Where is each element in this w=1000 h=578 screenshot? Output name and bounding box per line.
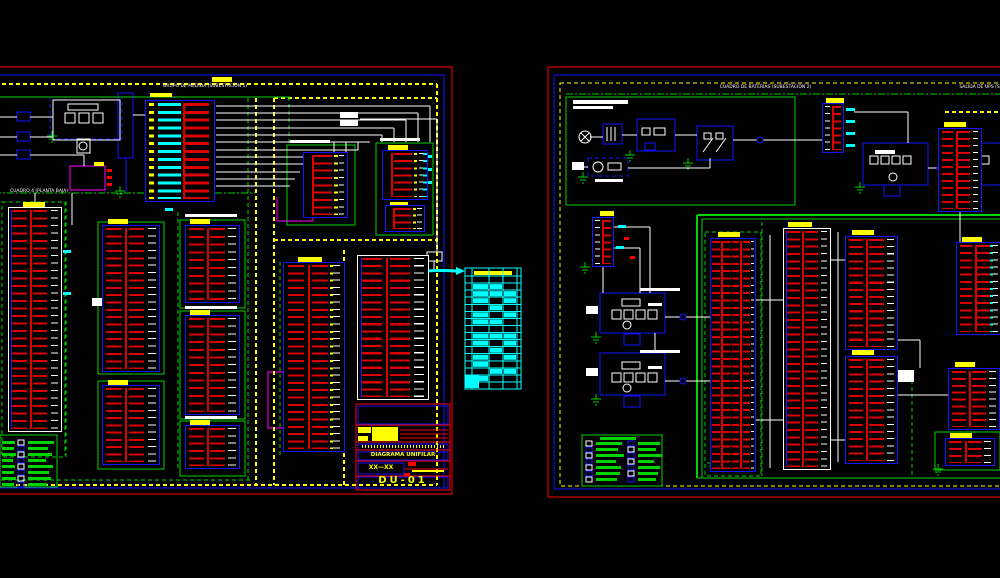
micro-label (852, 230, 874, 235)
strip-bars (228, 228, 235, 300)
strip-bars (395, 208, 411, 229)
cable-table-cell (490, 369, 502, 374)
strip-bars (989, 371, 996, 427)
micro-label (640, 288, 680, 291)
terminal-strip (382, 150, 428, 200)
micro-label (94, 162, 104, 166)
strip-bars (958, 131, 970, 209)
legend-symbol (586, 453, 592, 458)
micro-label (955, 362, 975, 367)
component-box (622, 362, 640, 369)
micro-label (618, 225, 626, 228)
micro-label (600, 211, 614, 216)
micro-label (290, 140, 330, 143)
component-box (648, 310, 657, 319)
micro-label (92, 298, 102, 306)
legend-symbol (18, 440, 24, 445)
micro-label (640, 350, 680, 353)
legend-text (28, 453, 52, 456)
terminal-strip (783, 228, 831, 470)
component-box (70, 166, 105, 190)
component-box (645, 143, 655, 150)
micro-label (573, 106, 613, 109)
legend-text (596, 466, 621, 469)
strip-bars (414, 258, 424, 397)
micro-label (107, 169, 112, 172)
legend-text (2, 465, 15, 468)
component-box (704, 133, 711, 139)
strip-rail (965, 441, 967, 463)
meter-symbol (623, 321, 631, 329)
strip-bars (825, 106, 830, 150)
strip-bars (210, 228, 225, 300)
component-box (65, 113, 75, 123)
ground-symbol (115, 186, 125, 197)
strip-bars (821, 231, 827, 467)
strip-bars (362, 258, 382, 397)
legend-text (28, 483, 47, 486)
strip-bars (394, 153, 412, 197)
strip-bars (603, 220, 611, 264)
component-box (624, 396, 640, 407)
zone-border (560, 83, 1000, 486)
terminal-strip (357, 255, 429, 400)
legend-text (28, 471, 49, 474)
meter-symbol (623, 384, 631, 392)
micro-label (380, 138, 420, 141)
legend-text (596, 448, 618, 451)
legend-text (638, 442, 660, 445)
component-box (79, 113, 89, 123)
strip-bars (960, 245, 972, 332)
meter-symbol (889, 173, 897, 181)
component-box (358, 406, 448, 424)
strip-rail (30, 210, 32, 429)
strip-bars (949, 441, 962, 463)
legend-symbol (628, 471, 634, 476)
legend-symbol (18, 464, 24, 469)
micro-label (108, 219, 128, 224)
micro-label (63, 250, 71, 253)
cable-table-cell (504, 312, 516, 317)
terminal-strip (185, 425, 240, 469)
legend-symbol (18, 452, 24, 457)
component-box (17, 132, 30, 141)
strip-bars (332, 265, 340, 449)
legend-symbol (628, 477, 634, 482)
micro-label (340, 120, 358, 126)
legend-text (638, 472, 658, 475)
cable-table-cell (473, 334, 488, 339)
legend-text (2, 483, 14, 486)
micro-label (63, 292, 71, 295)
strip-rail (969, 371, 971, 427)
micro-label (846, 132, 855, 135)
legend-symbol (628, 453, 634, 458)
strip-bars (952, 371, 966, 427)
component-box (697, 126, 733, 160)
legend-text (28, 477, 51, 480)
strip-bars (148, 228, 156, 369)
transformer-coils (607, 127, 615, 141)
terminal-strip (185, 315, 240, 415)
strip-bars (413, 208, 416, 229)
micro-label (852, 350, 874, 355)
terminal-strip (102, 385, 160, 465)
strip-bars (51, 210, 58, 429)
legend-text (28, 465, 53, 468)
legend-symbol (586, 447, 592, 452)
junction-node (680, 314, 686, 320)
micro-label (616, 246, 624, 249)
component-box (612, 373, 621, 382)
micro-label (898, 370, 914, 382)
micro-label (408, 462, 416, 466)
strip-bars (314, 155, 332, 215)
ground-symbol (591, 332, 601, 343)
ground-symbol (591, 394, 601, 405)
strip-bars (887, 359, 894, 461)
component-box (17, 112, 30, 121)
strip-rail (125, 388, 127, 462)
cable-table-cell (465, 375, 479, 388)
terminal-strip (185, 225, 240, 303)
strip-bars (106, 228, 122, 369)
sheet2-header: CUADRO DE BATERIAS (SUBESTACION 2) (688, 85, 843, 90)
strip-bars (992, 245, 998, 332)
component-box (884, 185, 900, 196)
strip-bars (595, 220, 600, 264)
micro-label (944, 122, 966, 127)
strip-bars (805, 231, 818, 467)
cable-table-cell (473, 291, 488, 296)
strip-bars (210, 428, 225, 466)
legend-text (638, 454, 662, 457)
cable-table-cell (490, 305, 502, 310)
component-box (608, 163, 621, 170)
strip-rail (207, 318, 209, 412)
legend-symbol (628, 465, 634, 470)
legend-text (2, 441, 15, 444)
strip-bars (787, 231, 800, 467)
strip-bars (33, 210, 48, 429)
micro-label (788, 222, 812, 227)
legend-text (596, 442, 622, 445)
component-box (892, 156, 900, 164)
meter-symbol (79, 142, 87, 150)
terminal-strip (8, 207, 62, 432)
component-box (93, 113, 103, 123)
terminal-strip (710, 238, 756, 472)
component-box (654, 128, 665, 135)
strip-bars (743, 241, 750, 469)
strip-bars (984, 441, 991, 463)
strip-bars (228, 318, 235, 412)
strip-bars (390, 258, 410, 397)
strip-bars (334, 155, 337, 215)
cable-table-cell (504, 341, 516, 346)
cable-table-cell (473, 362, 488, 367)
micro-label (586, 368, 598, 376)
micro-label (185, 306, 237, 309)
strip-bars (417, 208, 422, 229)
micro-label (412, 470, 444, 472)
micro-label (107, 183, 112, 186)
strip-bars (712, 241, 720, 469)
micro-label (107, 176, 112, 179)
legend-text (2, 459, 13, 462)
component-box (881, 156, 889, 164)
legend-symbol (18, 446, 24, 451)
legend-text (596, 454, 624, 457)
micro-label (474, 271, 512, 275)
cable-table-cell (473, 312, 488, 317)
cable-table-cell (473, 298, 488, 303)
strip-bars (869, 239, 883, 347)
legend-symbol (586, 459, 592, 464)
cable-table-cell (473, 341, 488, 346)
legend-text (596, 478, 617, 481)
feeder-arrowhead (456, 267, 465, 275)
component-box (612, 310, 621, 319)
cable-table-cell (473, 284, 488, 289)
zone-border (566, 97, 795, 205)
component-box (622, 299, 640, 306)
micro-label (648, 366, 662, 369)
legend-text (28, 447, 48, 450)
cable-table-cell (490, 348, 502, 353)
strip-rail (125, 228, 127, 369)
strip-bars (330, 265, 333, 449)
legend-symbol (628, 459, 634, 464)
strip-rail (866, 239, 868, 347)
legend-symbol (628, 447, 634, 452)
terminal-strip (592, 217, 614, 267)
legend-text (638, 466, 660, 469)
strip-bars (869, 359, 883, 461)
micro-label (358, 436, 368, 441)
strip-bars (849, 239, 863, 347)
strip-bars (189, 318, 204, 412)
cable-table-cell (504, 355, 516, 360)
strip-bars (12, 210, 27, 429)
legend-text (2, 477, 16, 480)
micro-label (586, 306, 598, 314)
legend-text (2, 453, 16, 456)
legend-text (638, 448, 656, 451)
legend-symbol (586, 471, 592, 476)
strip-bars (849, 359, 863, 461)
strip-bars (972, 371, 986, 427)
terminal-strip (145, 100, 215, 202)
sheet2-header-2: SALIDA DE UPS (SUBESTACION 2) (922, 85, 1000, 90)
strip-bars (423, 153, 426, 197)
terminal-strip (283, 262, 345, 452)
component-box (554, 75, 1000, 489)
strip-bars (723, 241, 731, 469)
title-block-project-row (362, 445, 444, 448)
cable-table-cell (473, 319, 488, 324)
terminal-strip (822, 103, 844, 153)
strip-bars (129, 228, 145, 369)
strip-bars (228, 428, 235, 466)
micro-label (600, 437, 636, 440)
strip-bars (158, 103, 181, 199)
strip-bars (887, 239, 894, 347)
micro-label (648, 303, 662, 306)
strip-bars (185, 103, 208, 199)
component-box (870, 156, 878, 164)
strip-bars (973, 131, 979, 209)
micro-label (718, 232, 740, 237)
micro-label (185, 416, 237, 419)
micro-label (185, 214, 237, 217)
legend-symbol (628, 441, 634, 446)
cable-table-cell (490, 284, 502, 289)
micro-label (358, 427, 371, 433)
legend-symbol (586, 477, 592, 482)
legend-text (28, 441, 54, 444)
cable-table-cell (490, 319, 502, 324)
ground-symbol (625, 150, 635, 161)
cable-table-cell (504, 334, 516, 339)
cable-table-cell (504, 298, 516, 303)
component-box (624, 334, 640, 345)
ground-symbol (683, 158, 693, 169)
micro-label (340, 112, 358, 118)
cable-table-cell (490, 334, 502, 339)
component-box (642, 128, 650, 135)
micro-label (212, 77, 232, 82)
component-box (624, 373, 633, 382)
micro-label (875, 150, 895, 154)
junction-node (757, 137, 763, 143)
component-box (624, 310, 633, 319)
micro-label (372, 427, 398, 441)
micro-label (595, 179, 623, 182)
component-box (648, 373, 657, 382)
legend-text (638, 460, 654, 463)
legend-symbol (586, 465, 592, 470)
strip-bars (106, 388, 122, 462)
component-box (603, 124, 622, 144)
component-box (981, 156, 989, 164)
micro-label (624, 237, 629, 240)
strip-bars (732, 241, 739, 469)
component-box (50, 97, 122, 139)
cable-table-cell (473, 355, 488, 360)
strip-bars (149, 103, 154, 199)
micro-label (846, 144, 855, 147)
strip-bars (414, 153, 418, 197)
strip-rail (207, 428, 209, 466)
legend-text (638, 478, 656, 481)
legend-symbol (18, 470, 24, 475)
micro-label (572, 162, 584, 170)
terminal-strip (845, 356, 898, 464)
strip-bars (751, 241, 755, 469)
ground-symbol (578, 172, 588, 183)
cad-drawing-canvas: GRUPO DE MEDIDA (SUBESTACION 1) CUADRO 4… (0, 0, 1000, 578)
component-box (427, 252, 442, 261)
cable-table-cell (504, 291, 516, 296)
strip-bars (148, 388, 156, 462)
strip-rail (802, 231, 804, 467)
terminal-strip (303, 152, 348, 218)
title-block-sheet-ref: XX—XX (358, 465, 404, 470)
strip-rail (866, 359, 868, 461)
sheet1-zone-label: CUADRO 4 (PLANTA BAJA) (10, 189, 68, 194)
strip-bars (942, 131, 954, 209)
component-box (53, 100, 120, 140)
strip-bars (833, 106, 841, 150)
component-box (68, 104, 98, 110)
cable-table-cell (504, 369, 516, 374)
terminal-strip (948, 368, 1000, 430)
ground-symbol (580, 262, 590, 273)
component-box (17, 150, 30, 159)
inverter-symbol (703, 138, 726, 152)
legend-symbol (18, 458, 24, 463)
strip-bars (339, 155, 344, 215)
strip-bars (189, 428, 204, 466)
terminal-strip (102, 225, 160, 372)
legend-text (596, 472, 620, 475)
component-box (716, 133, 723, 139)
legend-symbol (586, 441, 592, 446)
legend-text (2, 447, 14, 450)
micro-label (190, 219, 210, 224)
title-block-drawing-title: DIAGRAMA UNIFILAR (358, 453, 448, 458)
title-block-code: DU-01 (358, 478, 448, 483)
strip-bars (129, 388, 145, 462)
generator-symbol (581, 133, 589, 141)
strip-rail (386, 258, 388, 397)
micro-label (846, 120, 855, 123)
junction-node (680, 378, 686, 384)
sheet1-header: GRUPO DE MEDIDA (SUBESTACION 1) (120, 84, 290, 89)
strip-rail (308, 265, 310, 449)
micro-label (846, 108, 855, 111)
terminal-strip (945, 438, 995, 466)
strip-bars (288, 265, 305, 449)
micro-label (573, 100, 628, 104)
meter-symbol (593, 162, 603, 172)
legend-text (2, 471, 14, 474)
terminal-strip (956, 242, 1000, 335)
sheet-frame (548, 67, 1000, 497)
strip-bars (977, 245, 989, 332)
strip-bars (312, 265, 329, 449)
component-box (903, 156, 911, 164)
micro-label (630, 256, 635, 259)
legend-text (596, 460, 616, 463)
cable-table-cell (490, 291, 502, 296)
terminal-strip (385, 205, 425, 232)
terminal-strip (845, 236, 898, 350)
strip-bars (189, 228, 204, 300)
component-box (636, 373, 645, 382)
strip-bars (968, 441, 981, 463)
strip-rail (207, 228, 209, 300)
strip-bars (990, 245, 993, 332)
micro-label (165, 208, 173, 211)
legend-text (28, 459, 46, 462)
terminal-strip (938, 128, 982, 212)
component-box (636, 310, 645, 319)
strip-bars (210, 318, 225, 412)
micro-label (150, 93, 172, 97)
